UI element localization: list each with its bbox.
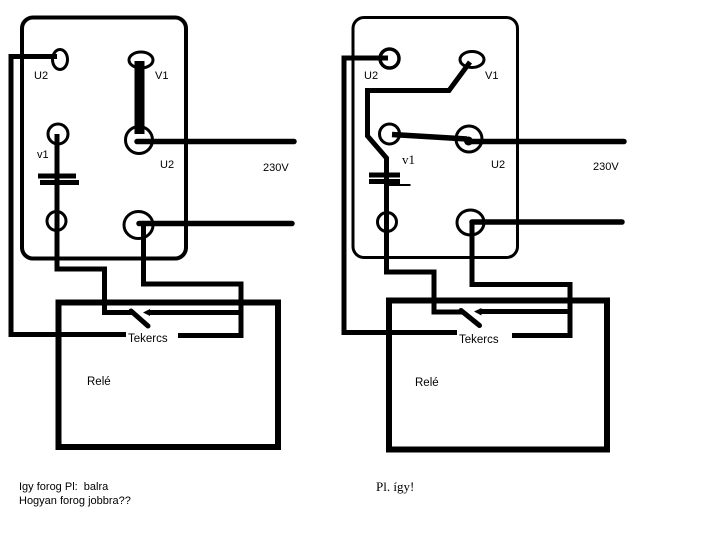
svg-text:Igy forog Pl: balra: Igy forog Pl: balra <box>19 481 109 493</box>
svg-text:Relé: Relé <box>415 377 439 389</box>
svg-text:U2: U2 <box>34 70 48 82</box>
svg-text:V1: V1 <box>155 70 168 82</box>
svg-text:Pl. így!: Pl. így! <box>376 479 414 494</box>
svg-text:v1: v1 <box>402 152 415 167</box>
svg-text:Tekercs: Tekercs <box>128 333 168 345</box>
svg-text:v1: v1 <box>37 149 49 161</box>
svg-text:230V: 230V <box>593 161 619 173</box>
svg-text:U2: U2 <box>364 70 378 82</box>
svg-text:U2: U2 <box>491 159 505 171</box>
svg-text:230V: 230V <box>263 162 289 174</box>
svg-text:Tekercs: Tekercs <box>459 334 499 346</box>
svg-text:V1: V1 <box>485 70 498 82</box>
svg-text:U2: U2 <box>160 159 174 171</box>
svg-text:Hogyan forog jobbra??: Hogyan forog jobbra?? <box>19 495 131 507</box>
svg-text:Relé: Relé <box>87 376 111 388</box>
